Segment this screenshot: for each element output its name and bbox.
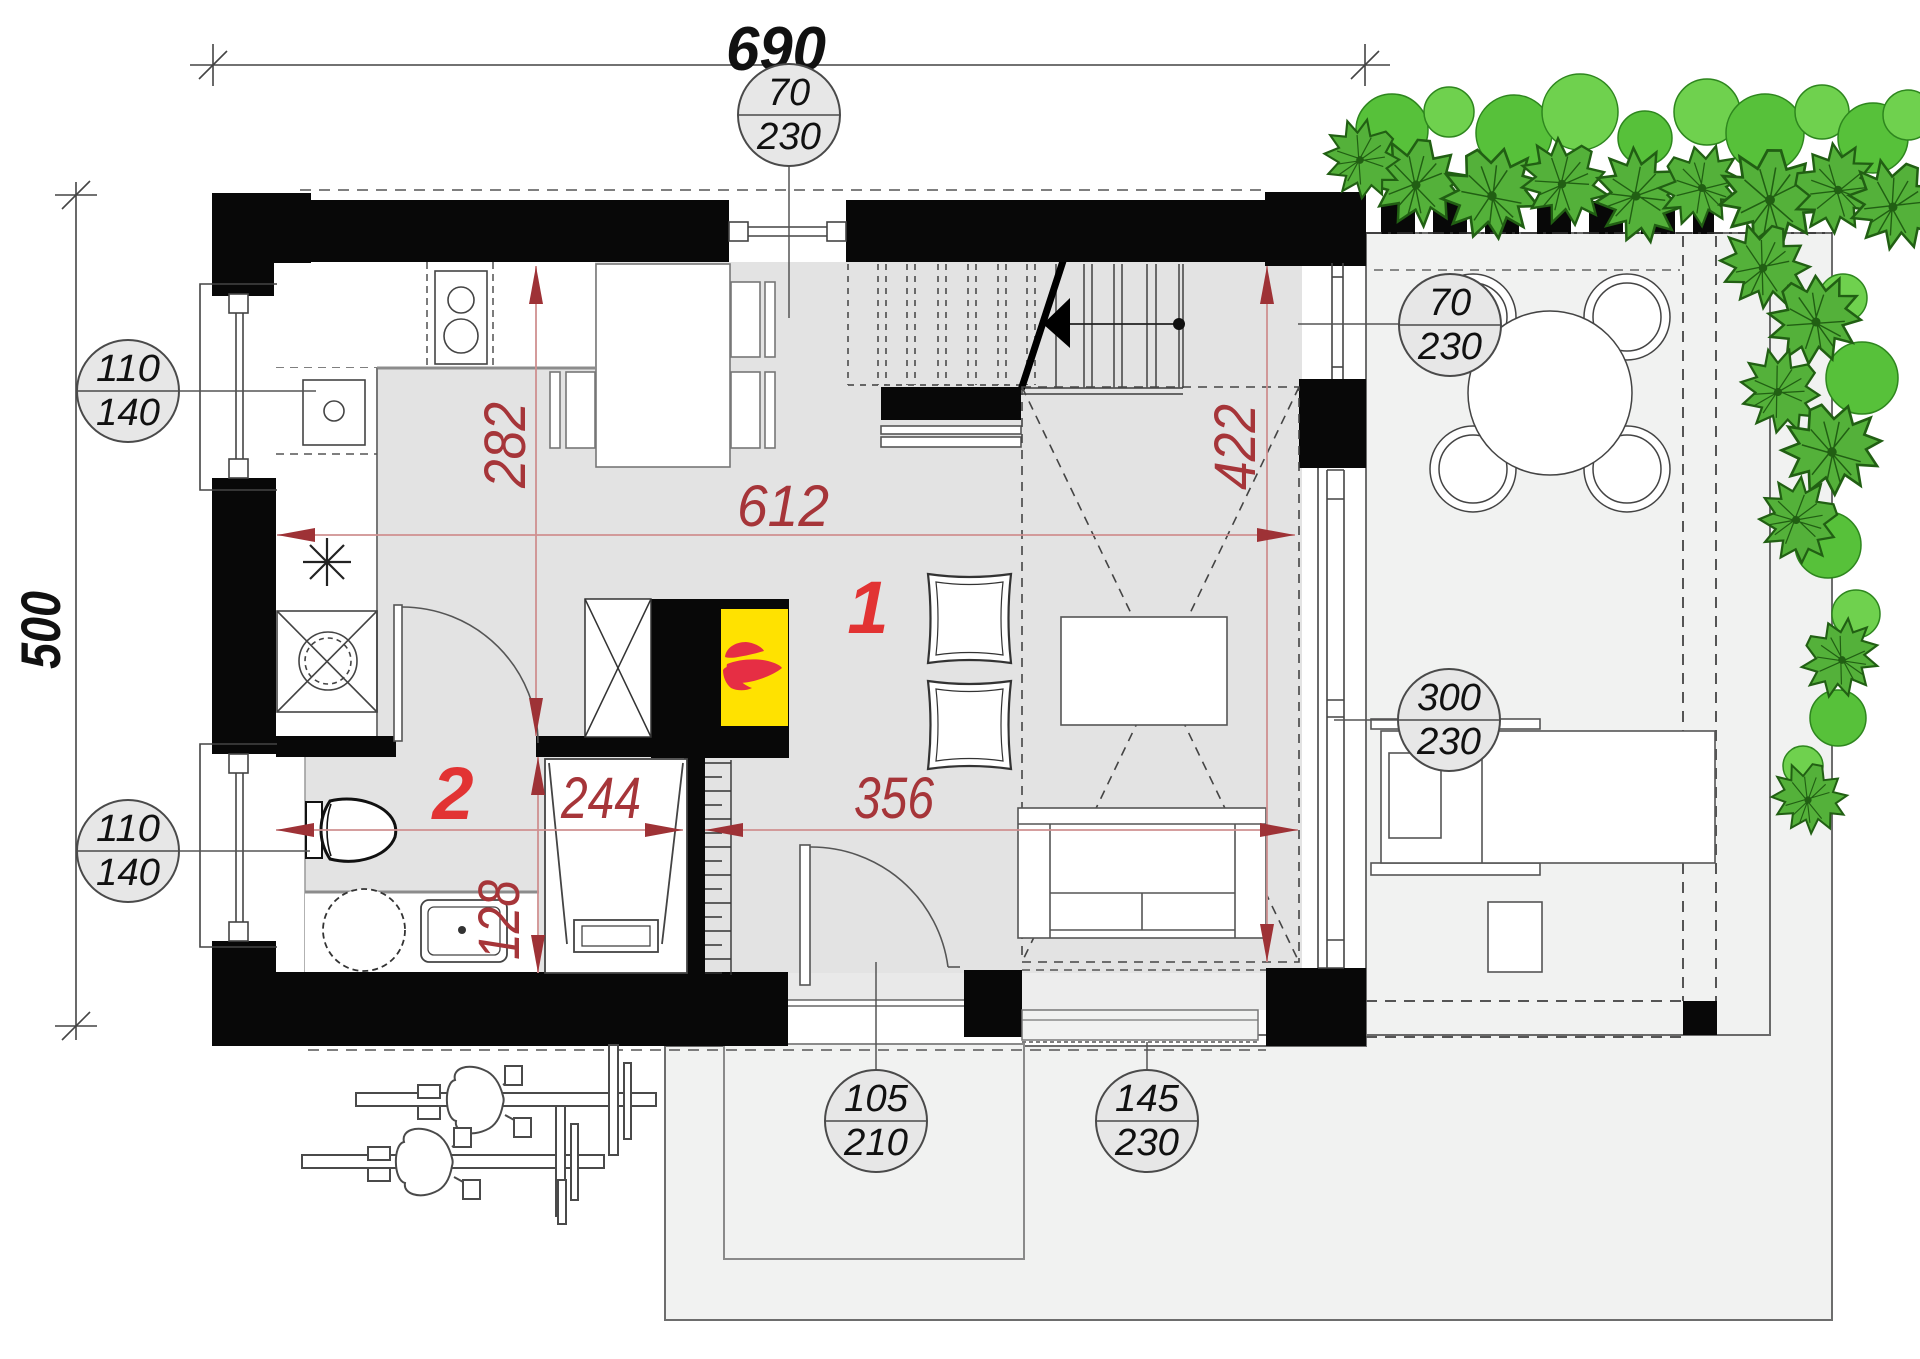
svg-text:612: 612 — [737, 474, 829, 539]
svg-text:356: 356 — [854, 766, 935, 831]
svg-text:230: 230 — [1416, 721, 1481, 763]
svg-text:128: 128 — [467, 880, 532, 960]
svg-text:244: 244 — [560, 766, 641, 831]
svg-text:70: 70 — [1429, 282, 1471, 324]
svg-text:210: 210 — [843, 1122, 908, 1164]
svg-text:70: 70 — [768, 72, 810, 114]
svg-text:1: 1 — [847, 566, 888, 649]
svg-text:230: 230 — [1417, 326, 1482, 368]
svg-text:282: 282 — [473, 402, 538, 489]
svg-text:110: 110 — [96, 348, 160, 390]
svg-text:140: 140 — [96, 852, 160, 894]
svg-text:300: 300 — [1417, 677, 1481, 719]
svg-text:145: 145 — [1115, 1078, 1180, 1120]
svg-text:2: 2 — [430, 752, 473, 835]
svg-text:230: 230 — [756, 116, 821, 158]
svg-text:230: 230 — [1114, 1122, 1179, 1164]
svg-text:422: 422 — [1203, 404, 1268, 490]
svg-text:500: 500 — [9, 591, 72, 669]
svg-text:105: 105 — [844, 1078, 909, 1120]
svg-text:140: 140 — [96, 392, 160, 434]
svg-text:110: 110 — [96, 808, 160, 850]
